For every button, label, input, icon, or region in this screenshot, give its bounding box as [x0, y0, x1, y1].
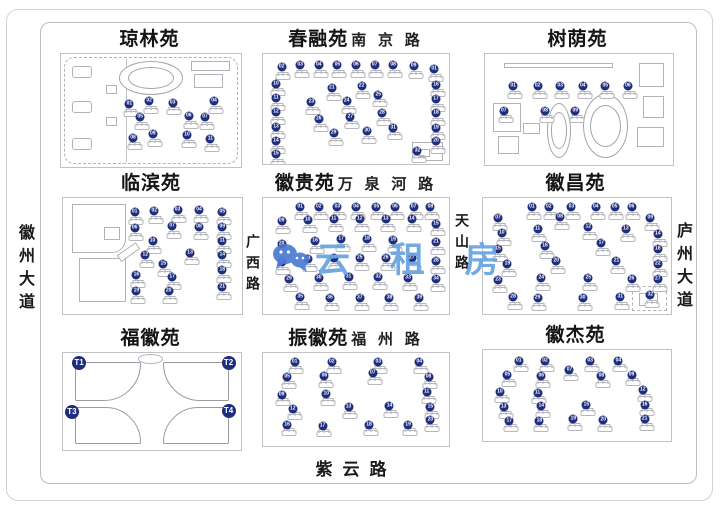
- building-marker-huijie-01[interactable]: 01: [514, 356, 523, 365]
- building-marker-chunrong-12[interactable]: 12: [272, 108, 281, 117]
- building-footprint: [321, 400, 336, 406]
- building-footprint: [326, 368, 341, 374]
- building-footprint: [309, 248, 324, 254]
- building-outline: [194, 74, 223, 88]
- building-footprint: [532, 305, 547, 311]
- compound-plan-huijieyuan: 0102030405060708091011121314151617181920…: [482, 349, 672, 442]
- building-footprint: [430, 268, 445, 274]
- building-marker-linbin-15[interactable]: 15: [159, 260, 168, 269]
- building-marker-huigui-21[interactable]: 21: [431, 238, 440, 247]
- building-footprint: [430, 286, 445, 292]
- building-marker-huijie-03[interactable]: 03: [586, 356, 595, 365]
- building-footprint: [615, 304, 630, 310]
- building-marker-huigui-15[interactable]: 15: [431, 219, 440, 228]
- building-footprint: [577, 305, 592, 311]
- building-footprint: [596, 250, 611, 256]
- building-marker-zhenhui-07[interactable]: 07: [368, 369, 377, 378]
- building-marker-chunrong-08[interactable]: 08: [389, 61, 398, 70]
- building-marker-linbin-17[interactable]: 17: [168, 272, 177, 281]
- building-marker-zhenhui-12[interactable]: 12: [288, 404, 297, 413]
- building-marker-huijie-11[interactable]: 11: [533, 388, 542, 397]
- building-footprint: [380, 265, 395, 271]
- building-marker-qionglin-06[interactable]: 06: [184, 112, 193, 121]
- building-marker-huigui-28[interactable]: 28: [431, 256, 440, 265]
- compound-plan-shuyinyuan: 010203040506070809: [484, 53, 674, 166]
- building-footprint: [551, 268, 566, 274]
- building-marker-huigui-23[interactable]: 23: [303, 255, 312, 264]
- building-marker-huichang-13[interactable]: 13: [621, 225, 630, 234]
- building-marker-shuyin-04[interactable]: 04: [578, 82, 587, 91]
- building-marker-zhenhui-06[interactable]: 06: [320, 372, 329, 381]
- road-label-guangxi-road: 广西路: [244, 234, 258, 297]
- building-marker-huigui-20[interactable]: 20: [277, 240, 286, 249]
- building-marker-chunrong-03[interactable]: 03: [296, 61, 305, 70]
- building-marker-qionglin-02[interactable]: 02: [145, 97, 154, 106]
- building-marker-chunrong-11[interactable]: 11: [272, 94, 281, 103]
- building-marker-linbin-08[interactable]: 08: [195, 223, 204, 232]
- building-marker-huichang-23[interactable]: 23: [494, 276, 503, 285]
- building-footprint: [611, 268, 626, 274]
- building-marker-linbin-04[interactable]: 04: [195, 205, 204, 214]
- building-marker-linbin-09[interactable]: 09: [218, 223, 227, 232]
- building-footprint: [430, 230, 445, 236]
- building-marker-huigui-03[interactable]: 03: [333, 203, 342, 212]
- building-footprint: [131, 298, 146, 304]
- building-marker-zhenhui-11[interactable]: 11: [422, 388, 431, 397]
- building-marker-huigui-13[interactable]: 13: [381, 214, 390, 223]
- building-footprint: [555, 93, 570, 99]
- building-marker-huichang-21[interactable]: 21: [612, 256, 621, 265]
- building-footprint: [163, 298, 178, 304]
- compound-title-zhenhuiyuan: 振徽苑福 州 路: [262, 325, 450, 352]
- building-footprint: [568, 425, 583, 431]
- building-marker-chunrong-28[interactable]: 28: [378, 109, 387, 118]
- building-marker-chunrong-14[interactable]: 14: [272, 136, 281, 145]
- building-marker-zhenhui-09[interactable]: 09: [277, 390, 286, 399]
- building-marker-zhenhui-19[interactable]: 19: [404, 420, 413, 429]
- building-marker-linbin-20[interactable]: 20: [164, 286, 173, 295]
- building-marker-huijie-02[interactable]: 02: [541, 356, 550, 365]
- compound-fuhuiyuan: 福徽苑 T1T2T3T4: [62, 325, 242, 451]
- building-marker-huigui-19[interactable]: 19: [389, 235, 398, 244]
- building-marker-huijie-04[interactable]: 04: [614, 356, 623, 365]
- building-marker-chunrong-31[interactable]: 31: [389, 123, 398, 132]
- building-marker-huijie-13[interactable]: 13: [499, 403, 508, 412]
- building-marker-chunrong-27[interactable]: 27: [346, 112, 355, 121]
- building-marker-huichang-19[interactable]: 19: [503, 260, 512, 269]
- building-footprint: [583, 234, 598, 240]
- building-outline: [72, 138, 92, 150]
- building-marker-huigui-01[interactable]: 01: [296, 203, 305, 212]
- building-marker-linbin-10[interactable]: 10: [148, 236, 157, 245]
- building-marker-shuyin-08[interactable]: 08: [541, 106, 550, 115]
- building-marker-linbin-14[interactable]: 14: [218, 250, 227, 259]
- building-marker-chunrong-29[interactable]: 29: [329, 129, 338, 138]
- building-marker-huigui-05[interactable]: 05: [372, 203, 381, 212]
- building-marker-huichang-16[interactable]: 16: [541, 241, 550, 250]
- compound-title-qionglinyuan: 琼林苑: [60, 26, 242, 53]
- building-footprint: [566, 214, 581, 220]
- building-outline: [104, 227, 120, 240]
- building-marker-linbin-11[interactable]: 11: [218, 236, 227, 245]
- building-footprint: [356, 93, 371, 99]
- building-marker-huigui-18[interactable]: 18: [363, 234, 372, 243]
- building-marker-huichang-01[interactable]: 01: [527, 203, 536, 212]
- building-footprint: [498, 117, 513, 123]
- building-footprint: [328, 265, 343, 271]
- building-marker-huigui-17[interactable]: 17: [337, 234, 346, 243]
- building-marker-chunrong-21[interactable]: 21: [327, 84, 336, 93]
- building-marker-huigui-06[interactable]: 06: [391, 203, 400, 212]
- building-marker-chunrong-22[interactable]: 22: [357, 81, 366, 90]
- building-marker-huigui-22[interactable]: 22: [277, 257, 286, 266]
- building-outline-large: [79, 258, 126, 302]
- building-footprint: [129, 235, 144, 241]
- building-marker-qionglin-01[interactable]: 01: [125, 99, 134, 108]
- building-footprint: [492, 287, 507, 293]
- building-marker-huichang-18[interactable]: 18: [653, 245, 662, 254]
- building-footprint: [577, 93, 592, 99]
- building-marker-huijie-05[interactable]: 05: [503, 371, 512, 380]
- building-marker-chunrong-25[interactable]: 25: [374, 90, 383, 99]
- building-marker-fuhui-T1[interactable]: T1: [72, 356, 86, 370]
- building-marker-qionglin-05[interactable]: 05: [136, 113, 145, 122]
- building-marker-huigui-07[interactable]: 07: [409, 203, 418, 212]
- building-marker-huichang-31[interactable]: 31: [616, 292, 625, 301]
- compound-zhenhuiyuan: 振徽苑福 州 路 0102030405060708091011121314151…: [262, 325, 450, 447]
- building-marker-huichang-28[interactable]: 28: [509, 292, 518, 301]
- building-footprint: [373, 101, 388, 107]
- building-marker-linbin-05[interactable]: 05: [218, 207, 227, 216]
- building-marker-chunrong-32[interactable]: 32: [413, 146, 422, 155]
- building-marker-zhenhui-01[interactable]: 01: [290, 358, 299, 367]
- building-marker-shuyin-05[interactable]: 05: [601, 82, 610, 91]
- building-footprint: [270, 161, 285, 165]
- building-marker-shuyin-02[interactable]: 02: [533, 82, 542, 91]
- compound-plan-fuhuiyuan: T1T2T3T4: [62, 352, 242, 451]
- building-marker-huigui-31[interactable]: 31: [344, 272, 353, 281]
- building-footprint: [502, 271, 517, 277]
- building-marker-chunrong-02[interactable]: 02: [277, 63, 286, 72]
- compound-huichangyuan: 徽昌苑 010203040506070809101112131415161718…: [482, 170, 672, 315]
- building-marker-huichang-27[interactable]: 27: [653, 275, 662, 284]
- building-outline: [643, 96, 664, 118]
- building-footprint: [313, 126, 328, 132]
- building-footprint: [406, 226, 421, 232]
- building-marker-chunrong-17[interactable]: 17: [431, 95, 440, 104]
- building-footprint: [295, 304, 310, 310]
- building-footprint: [205, 146, 220, 152]
- building-marker-huichang-15[interactable]: 15: [494, 245, 503, 254]
- building-marker-huigui-09[interactable]: 09: [277, 217, 286, 226]
- building-marker-huigui-30[interactable]: 30: [314, 274, 323, 283]
- building-marker-huigui-02[interactable]: 02: [314, 203, 323, 212]
- building-footprint: [513, 366, 528, 372]
- building-marker-huigui-34[interactable]: 34: [431, 275, 440, 284]
- building-marker-linbin-18[interactable]: 18: [218, 265, 227, 274]
- building-marker-huijie-14[interactable]: 14: [537, 402, 546, 411]
- building-marker-chunrong-05[interactable]: 05: [333, 61, 342, 70]
- building-marker-zhenhui-18[interactable]: 18: [365, 420, 374, 429]
- building-footprint: [508, 93, 523, 99]
- building-marker-zhenhui-10[interactable]: 10: [322, 389, 331, 398]
- building-marker-huichang-14[interactable]: 14: [653, 229, 662, 238]
- building-footprint: [287, 414, 302, 420]
- building-marker-fuhui-T2[interactable]: T2: [222, 356, 236, 370]
- building-marker-huigui-36[interactable]: 36: [325, 293, 334, 302]
- building-marker-huijie-17[interactable]: 17: [505, 416, 514, 425]
- building-footprint: [335, 246, 350, 252]
- building-marker-huichang-17[interactable]: 17: [597, 239, 606, 248]
- building-marker-huigui-12[interactable]: 12: [355, 214, 364, 223]
- building-marker-qionglin-10[interactable]: 10: [183, 131, 192, 140]
- building-footprint: [626, 380, 641, 386]
- building-footprint: [536, 382, 551, 388]
- building-marker-huichang-32[interactable]: 32: [646, 291, 655, 300]
- building-marker-qionglin-03[interactable]: 03: [168, 98, 177, 107]
- building-marker-chunrong-15[interactable]: 15: [272, 150, 281, 159]
- building-marker-qionglin-11[interactable]: 11: [206, 134, 215, 143]
- building-marker-linbin-19[interactable]: 19: [132, 286, 141, 295]
- building-marker-chunrong-13[interactable]: 13: [272, 122, 281, 131]
- building-marker-chunrong-24[interactable]: 24: [342, 97, 351, 106]
- building-marker-huichang-05[interactable]: 05: [610, 203, 619, 212]
- building-footprint: [328, 140, 343, 146]
- building-outline: [637, 127, 663, 147]
- building-footprint: [414, 305, 429, 311]
- building-marker-zhenhui-14[interactable]: 14: [385, 402, 394, 411]
- building-footprint: [540, 117, 555, 123]
- building-marker-huichang-09[interactable]: 09: [646, 213, 655, 222]
- building-footprint: [295, 72, 310, 78]
- building-marker-huigui-37[interactable]: 37: [355, 293, 364, 302]
- building-marker-huigui-29[interactable]: 29: [285, 275, 294, 284]
- building-marker-zhenhui-15[interactable]: 15: [426, 402, 435, 411]
- building-marker-linbin-01[interactable]: 01: [130, 207, 139, 216]
- building-marker-huichang-10[interactable]: 10: [497, 228, 506, 237]
- building-footprint: [581, 410, 596, 416]
- building-marker-fuhui-T3[interactable]: T3: [65, 405, 79, 419]
- building-marker-zhenhui-04[interactable]: 04: [415, 358, 424, 367]
- building-footprint: [430, 249, 445, 255]
- building-footprint: [504, 426, 519, 432]
- building-footprint: [302, 266, 317, 272]
- building-marker-huichang-29[interactable]: 29: [533, 293, 542, 302]
- road-label-tianshan-road: 天山路: [453, 213, 467, 276]
- building-marker-chunrong-23[interactable]: 23: [307, 98, 316, 107]
- building-marker-huigui-04[interactable]: 04: [352, 203, 361, 212]
- building-marker-huijie-18[interactable]: 18: [535, 416, 544, 425]
- building-marker-huigui-11[interactable]: 11: [329, 214, 338, 223]
- building-marker-zhenhui-08[interactable]: 08: [424, 373, 433, 382]
- building-marker-linbin-12[interactable]: 12: [141, 250, 150, 259]
- building-marker-huijie-20[interactable]: 20: [599, 416, 608, 425]
- building-marker-huigui-35[interactable]: 35: [296, 292, 305, 301]
- building-marker-huijie-09[interactable]: 09: [627, 370, 636, 379]
- tower-outline-t3: [75, 407, 141, 444]
- building-marker-huichang-11[interactable]: 11: [533, 225, 542, 234]
- building-footprint: [127, 144, 142, 150]
- building-footprint: [326, 95, 341, 101]
- building-outline: [72, 66, 92, 78]
- building-footprint: [282, 430, 297, 436]
- building-footprint: [534, 426, 549, 432]
- building-marker-huijie-12[interactable]: 12: [638, 386, 647, 395]
- building-marker-huijie-21[interactable]: 21: [640, 415, 649, 424]
- building-marker-huijie-06[interactable]: 06: [537, 372, 546, 381]
- building-marker-chunrong-19[interactable]: 19: [431, 123, 440, 132]
- building-marker-huigui-14[interactable]: 14: [407, 214, 416, 223]
- building-marker-linbin-21[interactable]: 21: [218, 283, 227, 292]
- building-marker-huijie-19[interactable]: 19: [569, 415, 578, 424]
- building-footprint: [147, 141, 162, 147]
- building-marker-huigui-10[interactable]: 10: [303, 216, 312, 225]
- building-footprint: [193, 217, 208, 223]
- building-footprint: [585, 366, 600, 372]
- building-marker-huichang-25[interactable]: 25: [584, 274, 593, 283]
- building-marker-chunrong-01[interactable]: 01: [430, 65, 439, 74]
- compound-plan-huiguiyuan: 0102030405060708091011121314151617181920…: [262, 197, 450, 315]
- building-marker-zhenhui-02[interactable]: 02: [327, 358, 336, 367]
- building-footprint: [639, 425, 654, 431]
- building-footprint: [526, 214, 541, 220]
- building-marker-huigui-39[interactable]: 39: [415, 293, 424, 302]
- building-marker-qionglin-09[interactable]: 09: [148, 130, 157, 139]
- building-marker-zhenhui-03[interactable]: 03: [374, 358, 383, 367]
- building-footprint: [425, 426, 440, 432]
- building-footprint: [313, 72, 328, 78]
- building-footprint: [354, 305, 369, 311]
- compound-huiguiyuan: 徽贵苑万 泉 河 路 01020304050607080910111213141…: [262, 170, 450, 315]
- building-footprint: [317, 431, 332, 437]
- building-marker-shuyin-07[interactable]: 07: [499, 106, 508, 115]
- building-marker-huichang-30[interactable]: 30: [578, 293, 587, 302]
- building-footprint: [380, 226, 395, 232]
- building-marker-chunrong-07[interactable]: 07: [370, 61, 379, 70]
- building-footprint: [167, 109, 182, 115]
- building-marker-huichang-02[interactable]: 02: [544, 203, 553, 212]
- building-footprint: [276, 251, 291, 257]
- building-marker-huigui-25[interactable]: 25: [355, 254, 364, 263]
- building-footprint: [324, 305, 339, 311]
- building-marker-zhenhui-20[interactable]: 20: [426, 415, 435, 424]
- building-marker-chunrong-30[interactable]: 30: [363, 127, 372, 136]
- building-marker-huichang-07[interactable]: 07: [494, 213, 503, 222]
- building-marker-shuyin-09[interactable]: 09: [571, 106, 580, 115]
- building-marker-chunrong-26[interactable]: 26: [314, 114, 323, 123]
- building-footprint: [283, 286, 298, 292]
- building-marker-huigui-26[interactable]: 26: [381, 254, 390, 263]
- compound-plan-huichangyuan: 0102030405060708091011121314151617181920…: [482, 197, 672, 315]
- building-marker-linbin-03[interactable]: 03: [173, 205, 182, 214]
- building-marker-huijie-08[interactable]: 08: [597, 372, 606, 381]
- building-marker-zhenhui-13[interactable]: 13: [344, 402, 353, 411]
- building-marker-huichang-08[interactable]: 08: [556, 212, 565, 221]
- building-marker-linbin-16[interactable]: 16: [132, 270, 141, 279]
- building-footprint: [388, 247, 403, 253]
- building-footprint: [652, 286, 667, 292]
- building-marker-linbin-06[interactable]: 06: [130, 224, 139, 233]
- building-marker-qionglin-08[interactable]: 08: [129, 133, 138, 142]
- building-marker-huichang-22[interactable]: 22: [653, 260, 662, 269]
- road-label-luzhou-avenue: 庐州大道: [674, 222, 690, 314]
- building-marker-huigui-33[interactable]: 33: [404, 274, 413, 283]
- building-marker-chunrong-16[interactable]: 16: [431, 80, 440, 89]
- building-marker-huigui-16[interactable]: 16: [311, 236, 320, 245]
- building-footprint: [430, 148, 445, 154]
- building-marker-zhenhui-16[interactable]: 16: [283, 420, 292, 429]
- building-marker-shuyin-03[interactable]: 03: [556, 82, 565, 91]
- building-footprint: [388, 134, 403, 140]
- building-marker-huichang-03[interactable]: 03: [567, 203, 576, 212]
- compound-title-huijieyuan: 徽杰苑: [482, 322, 672, 349]
- building-footprint: [564, 375, 579, 381]
- building-marker-huigui-27[interactable]: 27: [407, 254, 416, 263]
- building-footprint: [600, 93, 615, 99]
- building-marker-fuhui-T4[interactable]: T4: [222, 404, 236, 418]
- building-marker-huijie-15[interactable]: 15: [582, 400, 591, 409]
- building-marker-shuyin-06[interactable]: 06: [623, 82, 632, 91]
- building-marker-zhenhui-05[interactable]: 05: [283, 373, 292, 382]
- building-marker-qionglin-04[interactable]: 04: [210, 97, 219, 106]
- building-footprint: [319, 382, 334, 388]
- compound-plan-linbinyuan: 0102030405060708091011121314151617181920…: [62, 197, 243, 315]
- building-marker-linbin-07[interactable]: 07: [168, 221, 177, 230]
- building-marker-qionglin-07[interactable]: 07: [201, 113, 210, 122]
- building-marker-huigui-24[interactable]: 24: [329, 254, 338, 263]
- building-marker-chunrong-09[interactable]: 09: [409, 62, 418, 71]
- building-marker-huichang-26[interactable]: 26: [627, 275, 636, 284]
- building-marker-huichang-24[interactable]: 24: [537, 274, 546, 283]
- building-footprint: [362, 246, 377, 252]
- road-label-ziyun-road: 紫云路: [262, 455, 450, 480]
- building-marker-huichang-04[interactable]: 04: [591, 203, 600, 212]
- compound-title-linbinyuan: 临滨苑: [62, 170, 243, 197]
- compound-title-huichangyuan: 徽昌苑: [482, 170, 672, 197]
- compound-linbinyuan: 临滨苑 010203040506070809101112131415161718…: [62, 170, 243, 315]
- building-footprint: [343, 413, 358, 419]
- building-footprint: [609, 214, 624, 220]
- building-marker-chunrong-20[interactable]: 20: [431, 136, 440, 145]
- building-marker-chunrong-18[interactable]: 18: [431, 109, 440, 118]
- building-footprint: [217, 277, 232, 283]
- compound-huijieyuan: 徽杰苑 010203040506070809101112131415161718…: [482, 322, 672, 442]
- building-footprint: [590, 214, 605, 220]
- building-footprint: [354, 226, 369, 232]
- building-marker-huigui-32[interactable]: 32: [374, 272, 383, 281]
- building-footprint: [144, 108, 159, 114]
- building-marker-huichang-12[interactable]: 12: [584, 223, 593, 232]
- building-marker-chunrong-10[interactable]: 10: [272, 79, 281, 88]
- building-marker-huijie-07[interactable]: 07: [565, 366, 574, 375]
- building-marker-zhenhui-17[interactable]: 17: [318, 421, 327, 430]
- building-marker-huijie-16[interactable]: 16: [640, 400, 649, 409]
- building-footprint: [208, 108, 223, 114]
- building-footprint: [332, 72, 347, 78]
- building-marker-chunrong-06[interactable]: 06: [352, 61, 361, 70]
- building-marker-linbin-13[interactable]: 13: [186, 248, 195, 257]
- building-footprint: [313, 214, 328, 220]
- building-marker-linbin-02[interactable]: 02: [150, 206, 159, 215]
- building-marker-huichang-06[interactable]: 06: [627, 203, 636, 212]
- building-marker-chunrong-04[interactable]: 04: [314, 61, 323, 70]
- building-marker-huijie-10[interactable]: 10: [495, 387, 504, 396]
- building-marker-huigui-08[interactable]: 08: [426, 203, 435, 212]
- building-footprint: [613, 366, 628, 372]
- building-marker-shuyin-01[interactable]: 01: [509, 82, 518, 91]
- building-marker-huigui-38[interactable]: 38: [385, 293, 394, 302]
- building-marker-huichang-20[interactable]: 20: [552, 256, 561, 265]
